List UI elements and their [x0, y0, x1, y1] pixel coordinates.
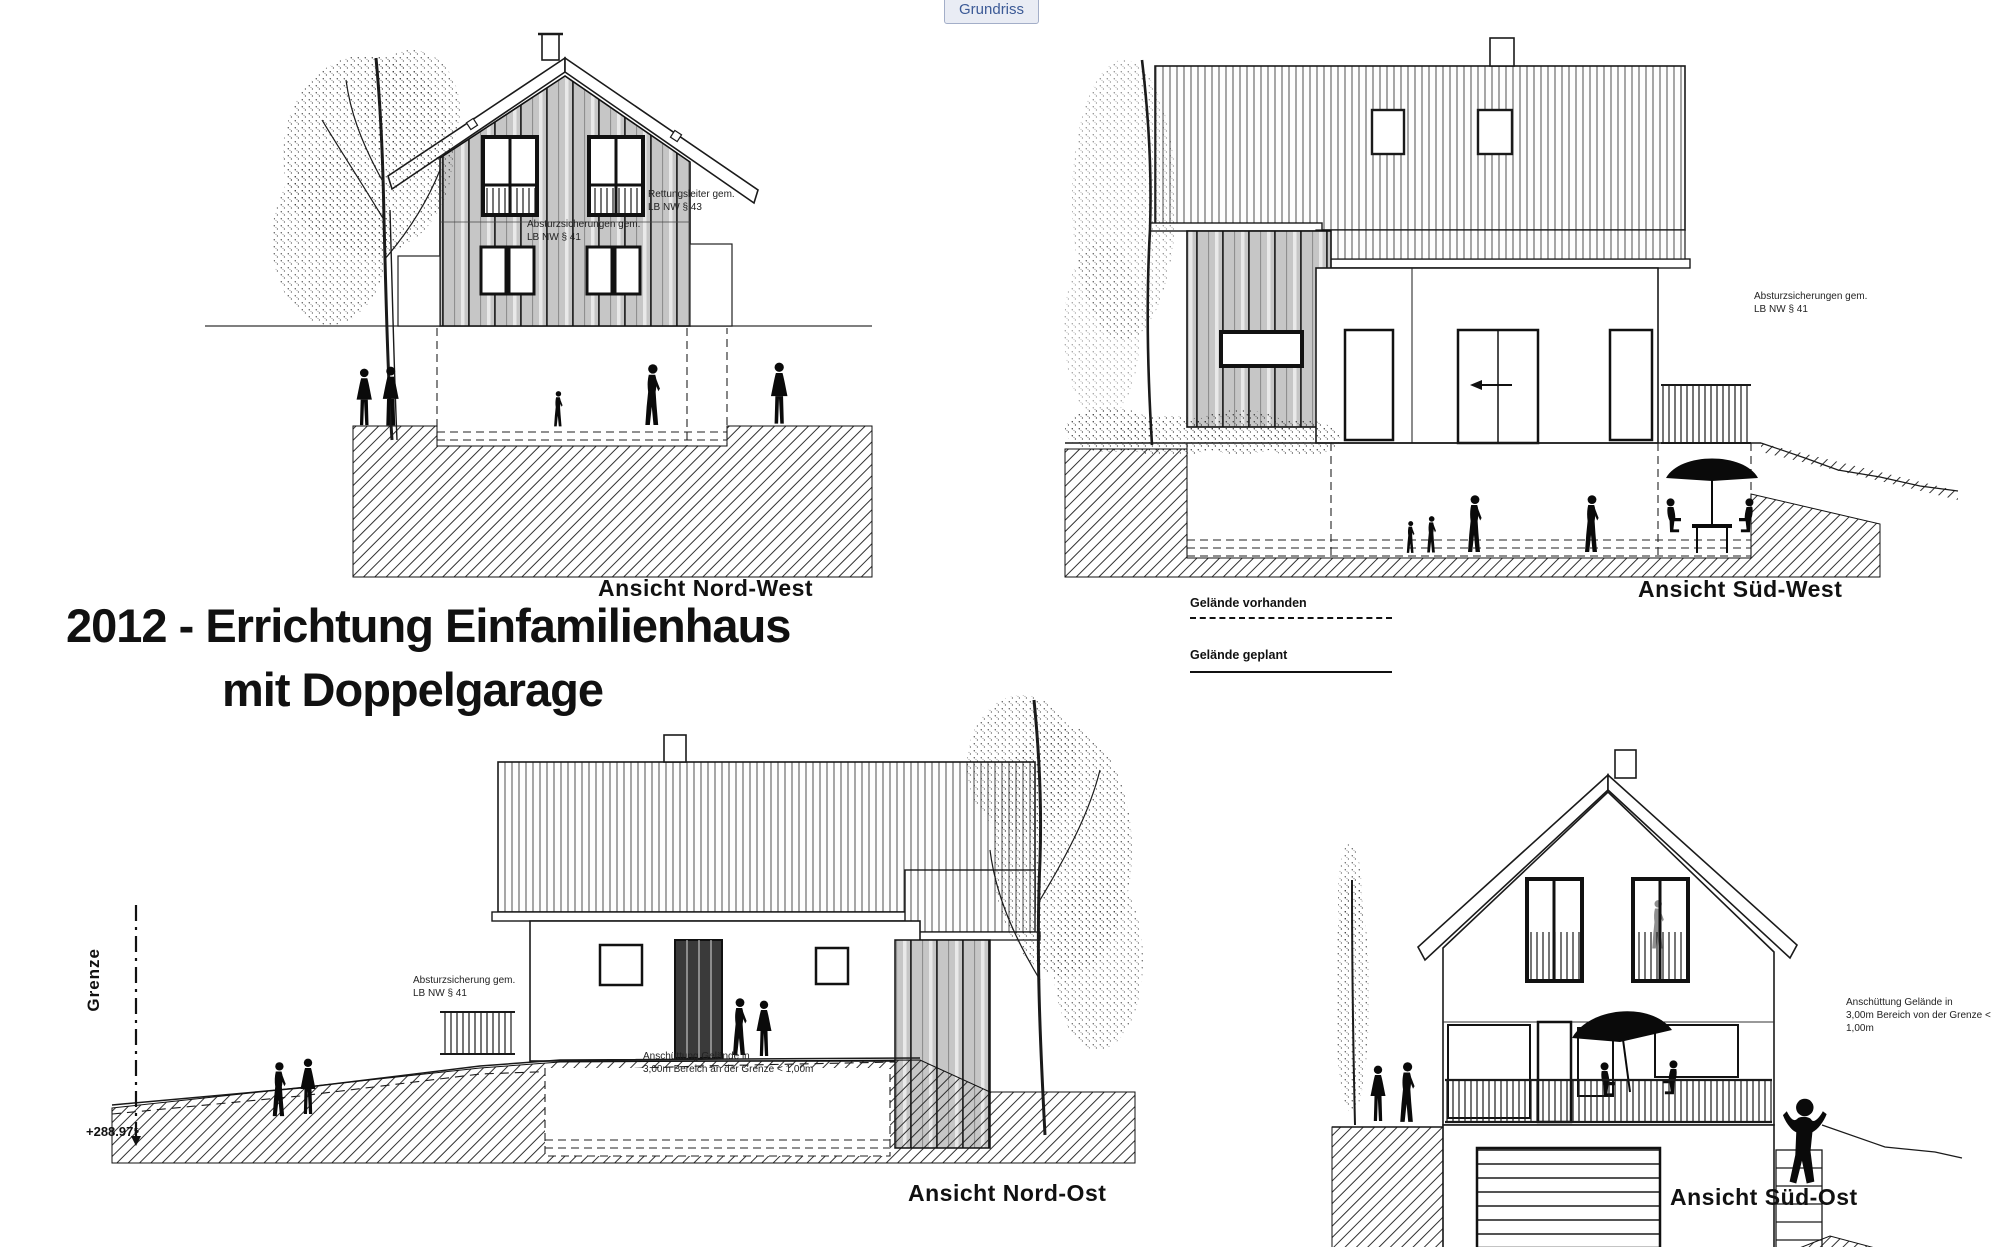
garage-window: [1221, 332, 1302, 366]
garage-door: [1477, 1148, 1660, 1247]
roof-window: [1372, 110, 1404, 154]
ground-hatch: [353, 426, 872, 577]
sheet-title-line2: mit Doppelgarage: [222, 662, 603, 717]
upper-window: [589, 137, 643, 215]
window-railing: [485, 188, 535, 213]
chimney: [1615, 750, 1636, 778]
legend-dashed-line: [1190, 617, 1392, 619]
elevation-sheet: Grundriss 2012 - Errichtung Einfamilienh…: [0, 0, 2000, 1247]
sheet-title-line1: 2012 - Errichtung Einfamilienhaus: [66, 598, 790, 653]
person-silhouette: [645, 364, 660, 425]
terrain-slope: [1822, 1125, 1962, 1158]
person-silhouette: [1468, 495, 1482, 552]
chimney: [1490, 38, 1514, 66]
person-silhouette: [1400, 1062, 1414, 1122]
terrace-railing: [1661, 385, 1751, 443]
umbrella-icon: [1666, 459, 1758, 482]
entrance-door: [675, 940, 722, 1058]
nord-ost-drawing: [112, 695, 1143, 1163]
garage-siding: [1187, 231, 1331, 427]
side-wall-left: [398, 256, 440, 326]
child-silhouette: [1427, 516, 1436, 552]
view-label-sued-west: Ansicht Süd-West: [1638, 576, 1842, 603]
window-railing: [1529, 932, 1580, 979]
legend-terrain-planned: Gelände geplant: [1190, 648, 1392, 673]
entrance-door: [1458, 330, 1538, 443]
side-wall-right: [690, 244, 732, 326]
child-silhouette: [554, 391, 562, 426]
person-silhouette: [1371, 1066, 1386, 1121]
annotation-absturzsicherung-nw: Absturzsicherungen gem. LB NW § 41: [527, 218, 657, 244]
chimney: [664, 735, 686, 762]
grundriss-button[interactable]: Grundriss: [944, 0, 1039, 24]
roof: [492, 762, 1040, 940]
window: [600, 945, 642, 985]
nord-west-drawing: [205, 34, 872, 577]
view-label-sued-ost: Ansicht Süd-Ost: [1670, 1184, 1858, 1211]
legend-label: Gelände vorhanden: [1190, 596, 1392, 610]
tree: [1064, 60, 1176, 445]
view-label-nord-ost: Ansicht Nord-Ost: [908, 1180, 1106, 1207]
person-silhouette: [1585, 495, 1599, 552]
legend-terrain-existing: Gelände vorhanden: [1190, 596, 1392, 619]
chimney: [542, 34, 559, 60]
window-railing: [1635, 932, 1686, 979]
legend-label: Gelände geplant: [1190, 648, 1392, 662]
window: [816, 948, 848, 984]
annotation-rettungsleiter: Rettungsleiter gem. LB NW § 43: [648, 188, 760, 214]
legend-solid-line: [1190, 671, 1392, 673]
terrace-railing: [440, 1012, 515, 1054]
terrace-railing: [1445, 1080, 1772, 1122]
person-silhouette: [357, 369, 372, 426]
grenze-label: Grenze: [84, 948, 104, 1012]
annotation-anschuettung-so: Anschüttung Gelände in 3,00m Bereich von…: [1846, 996, 2000, 1035]
window-railing: [591, 188, 641, 213]
window: [1610, 330, 1652, 440]
basement-outline: [437, 328, 727, 446]
upper-window: [483, 137, 537, 215]
view-label-nord-west: Ansicht Nord-West: [598, 575, 813, 602]
main-wall: [530, 921, 920, 1061]
person-silhouette: [771, 363, 788, 424]
roof-window: [1478, 110, 1512, 154]
annotation-anschuettung-no: Anschüttung Gelände in 3,00m Bereich an …: [643, 1050, 858, 1076]
elevation-marker: +288.97⁵: [86, 1124, 139, 1139]
upper-window: [1633, 879, 1688, 981]
window: [1345, 330, 1393, 440]
annotation-absturzsicherung-sw: Absturzsicherungen gem. LB NW § 41: [1754, 290, 1889, 316]
ground-hatch: [1332, 1127, 1443, 1247]
upper-window: [1527, 879, 1582, 981]
annotation-absturzsicherung-no: Absturzsicherung gem. LB NW § 41: [413, 974, 538, 1000]
umbrella-table-group: [1666, 459, 1758, 554]
tree: [1335, 843, 1369, 1125]
